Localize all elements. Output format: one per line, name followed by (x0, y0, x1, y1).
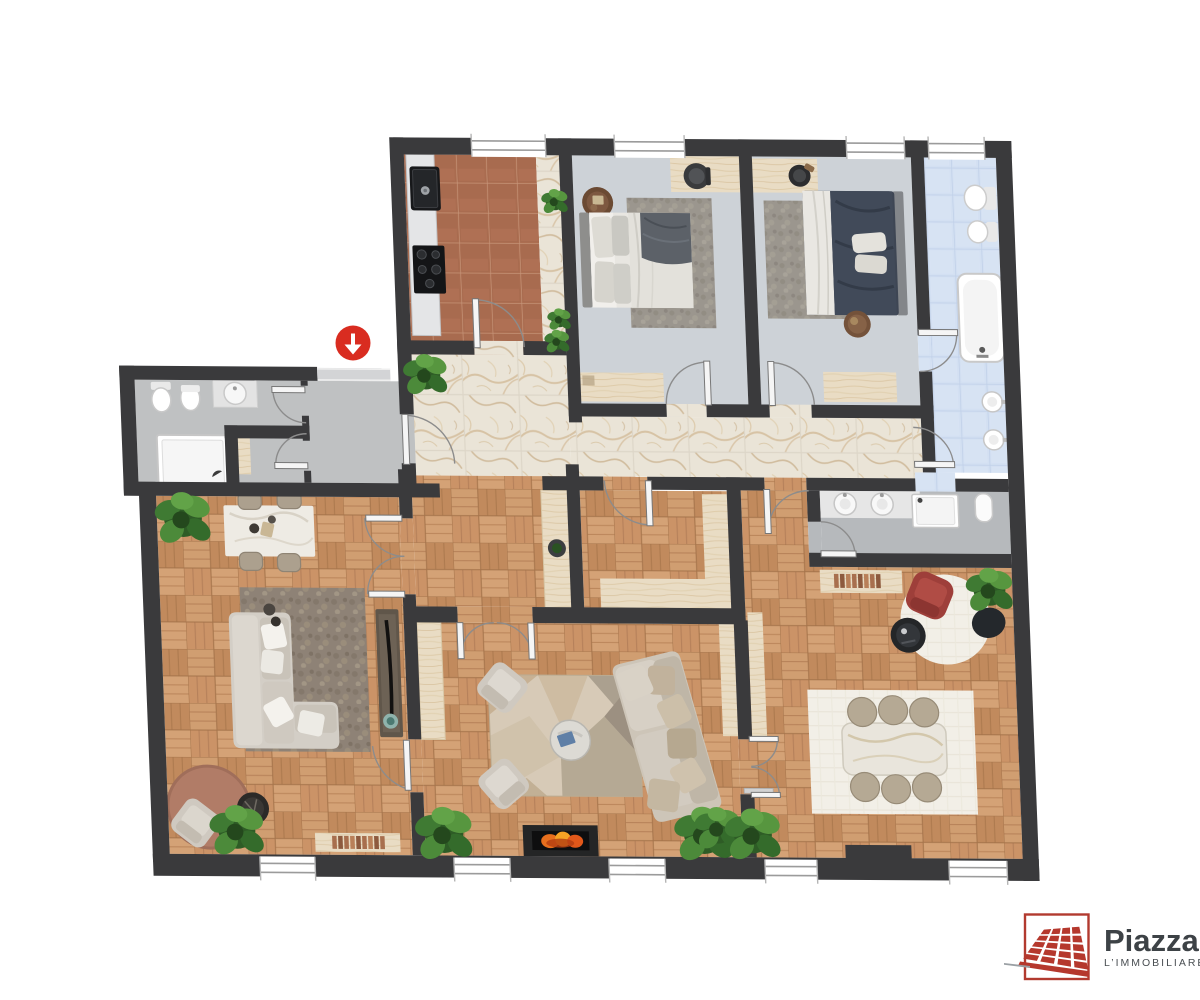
svg-text:Piazza: Piazza (1104, 923, 1200, 958)
svg-text:L’IMMOBILIARE: L’IMMOBILIARE (1104, 957, 1200, 969)
